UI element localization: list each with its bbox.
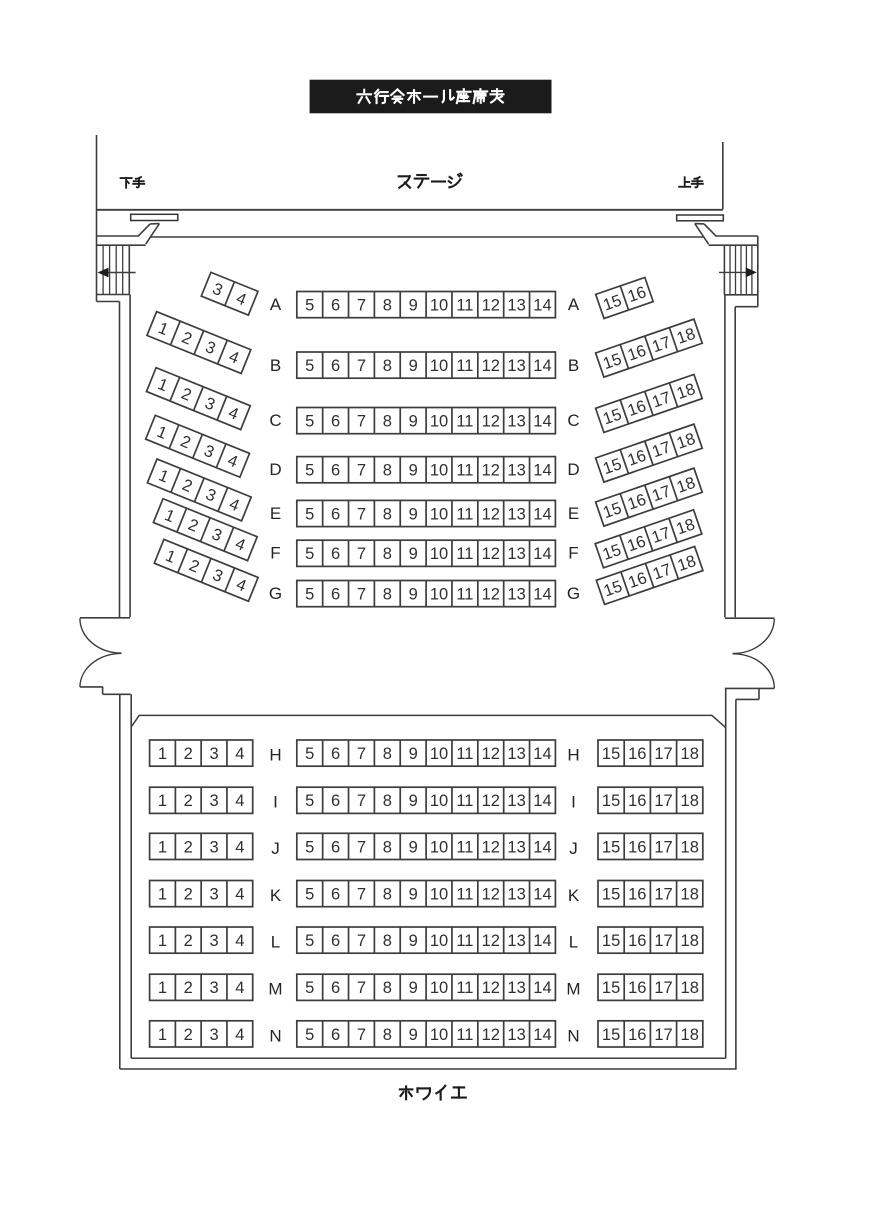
svg-text:1: 1: [158, 838, 167, 856]
svg-text:8: 8: [383, 885, 392, 903]
svg-text:8: 8: [383, 838, 392, 856]
svg-text:2: 2: [184, 932, 193, 950]
svg-text:E: E: [568, 504, 579, 523]
svg-text:D: D: [567, 460, 579, 479]
svg-text:5: 5: [305, 505, 314, 523]
svg-text:5: 5: [305, 932, 314, 950]
svg-text:7: 7: [357, 412, 366, 430]
svg-text:11: 11: [456, 505, 473, 523]
svg-text:14: 14: [533, 585, 551, 603]
svg-text:2: 2: [184, 745, 193, 763]
svg-text:17: 17: [654, 1026, 672, 1044]
svg-text:13: 13: [507, 745, 525, 763]
svg-text:6: 6: [331, 462, 340, 480]
svg-text:M: M: [566, 980, 580, 999]
svg-text:D: D: [269, 460, 281, 479]
svg-text:15: 15: [602, 838, 620, 856]
svg-text:3: 3: [209, 792, 218, 810]
svg-text:13: 13: [507, 296, 525, 314]
svg-text:16: 16: [628, 745, 646, 763]
svg-text:J: J: [569, 839, 578, 858]
svg-text:2: 2: [184, 979, 193, 997]
svg-text:1: 1: [158, 792, 167, 810]
svg-text:9: 9: [409, 545, 418, 563]
svg-text:7: 7: [357, 462, 366, 480]
svg-text:2: 2: [184, 885, 193, 903]
svg-text:9: 9: [409, 585, 418, 603]
svg-text:12: 12: [482, 412, 500, 430]
svg-text:14: 14: [533, 462, 551, 480]
svg-text:8: 8: [383, 545, 392, 563]
svg-text:4: 4: [235, 932, 244, 950]
svg-text:5: 5: [305, 792, 314, 810]
svg-text:A: A: [568, 295, 580, 314]
svg-text:6: 6: [331, 745, 340, 763]
svg-text:C: C: [269, 411, 281, 430]
svg-text:6: 6: [331, 545, 340, 563]
svg-text:5: 5: [305, 357, 314, 375]
svg-text:6: 6: [331, 932, 340, 950]
svg-text:10: 10: [430, 545, 448, 563]
svg-text:H: H: [269, 746, 281, 765]
svg-text:16: 16: [628, 979, 646, 997]
svg-text:9: 9: [409, 979, 418, 997]
svg-text:11: 11: [456, 585, 473, 603]
svg-text:5: 5: [305, 885, 314, 903]
svg-text:7: 7: [357, 745, 366, 763]
svg-text:9: 9: [409, 357, 418, 375]
svg-text:9: 9: [409, 462, 418, 480]
svg-text:M: M: [268, 980, 282, 999]
svg-text:12: 12: [482, 745, 500, 763]
svg-text:11: 11: [456, 296, 473, 314]
svg-text:3: 3: [209, 979, 218, 997]
svg-text:15: 15: [602, 792, 620, 810]
svg-text:14: 14: [533, 412, 551, 430]
svg-text:11: 11: [456, 979, 473, 997]
svg-text:L: L: [569, 933, 578, 952]
svg-text:10: 10: [430, 585, 448, 603]
svg-text:10: 10: [430, 745, 448, 763]
svg-text:16: 16: [628, 885, 646, 903]
svg-text:14: 14: [533, 792, 551, 810]
svg-text:10: 10: [430, 979, 448, 997]
svg-text:7: 7: [357, 1026, 366, 1044]
svg-text:12: 12: [482, 885, 500, 903]
svg-text:12: 12: [482, 296, 500, 314]
svg-text:F: F: [270, 544, 280, 563]
svg-text:J: J: [271, 839, 280, 858]
svg-text:17: 17: [654, 838, 672, 856]
svg-text:F: F: [568, 544, 578, 563]
svg-text:4: 4: [235, 792, 244, 810]
svg-text:3: 3: [209, 838, 218, 856]
svg-text:13: 13: [507, 792, 525, 810]
svg-text:6: 6: [331, 357, 340, 375]
svg-text:16: 16: [628, 1026, 646, 1044]
svg-text:8: 8: [383, 462, 392, 480]
svg-text:16: 16: [628, 838, 646, 856]
svg-text:11: 11: [456, 357, 473, 375]
svg-text:17: 17: [654, 792, 672, 810]
svg-text:3: 3: [209, 932, 218, 950]
svg-text:5: 5: [305, 412, 314, 430]
svg-text:8: 8: [383, 979, 392, 997]
svg-text:18: 18: [681, 885, 699, 903]
svg-text:11: 11: [456, 545, 473, 563]
svg-text:9: 9: [409, 792, 418, 810]
svg-text:14: 14: [533, 545, 551, 563]
svg-text:11: 11: [456, 885, 473, 903]
svg-text:12: 12: [482, 792, 500, 810]
svg-text:11: 11: [456, 412, 473, 430]
svg-text:G: G: [269, 584, 282, 603]
svg-text:7: 7: [357, 545, 366, 563]
svg-text:7: 7: [357, 792, 366, 810]
svg-text:14: 14: [533, 1026, 551, 1044]
svg-text:12: 12: [482, 357, 500, 375]
svg-text:6: 6: [331, 979, 340, 997]
svg-text:10: 10: [430, 885, 448, 903]
svg-text:14: 14: [533, 296, 551, 314]
svg-text:8: 8: [383, 296, 392, 314]
svg-text:12: 12: [482, 838, 500, 856]
svg-text:8: 8: [383, 932, 392, 950]
svg-text:K: K: [568, 886, 580, 905]
svg-text:13: 13: [507, 505, 525, 523]
svg-text:4: 4: [235, 979, 244, 997]
svg-text:7: 7: [357, 838, 366, 856]
svg-text:14: 14: [533, 745, 551, 763]
svg-text:1: 1: [158, 885, 167, 903]
svg-text:14: 14: [533, 979, 551, 997]
svg-text:5: 5: [305, 1026, 314, 1044]
svg-text:14: 14: [533, 932, 551, 950]
svg-text:13: 13: [507, 979, 525, 997]
svg-text:7: 7: [357, 585, 366, 603]
svg-text:9: 9: [409, 296, 418, 314]
svg-text:N: N: [269, 1026, 281, 1045]
svg-text:C: C: [567, 411, 579, 430]
svg-text:N: N: [567, 1026, 579, 1045]
svg-text:7: 7: [357, 296, 366, 314]
svg-text:10: 10: [430, 357, 448, 375]
svg-text:2: 2: [184, 1026, 193, 1044]
svg-text:13: 13: [507, 1026, 525, 1044]
svg-text:7: 7: [357, 505, 366, 523]
svg-text:1: 1: [158, 1026, 167, 1044]
svg-text:18: 18: [681, 932, 699, 950]
svg-text:8: 8: [383, 1026, 392, 1044]
svg-text:2: 2: [184, 838, 193, 856]
svg-text:16: 16: [628, 792, 646, 810]
svg-text:17: 17: [654, 745, 672, 763]
svg-text:15: 15: [602, 1026, 620, 1044]
svg-text:10: 10: [430, 932, 448, 950]
svg-text:G: G: [567, 584, 580, 603]
svg-text:6: 6: [331, 838, 340, 856]
svg-text:9: 9: [409, 505, 418, 523]
svg-text:15: 15: [602, 745, 620, 763]
svg-text:6: 6: [331, 505, 340, 523]
svg-text:13: 13: [507, 357, 525, 375]
svg-text:7: 7: [357, 932, 366, 950]
svg-text:6: 6: [331, 296, 340, 314]
svg-text:5: 5: [305, 585, 314, 603]
svg-text:9: 9: [409, 1026, 418, 1044]
svg-text:6: 6: [331, 792, 340, 810]
svg-text:12: 12: [482, 979, 500, 997]
svg-text:13: 13: [507, 838, 525, 856]
svg-text:15: 15: [602, 885, 620, 903]
svg-text:10: 10: [430, 296, 448, 314]
svg-text:13: 13: [507, 585, 525, 603]
svg-text:5: 5: [305, 838, 314, 856]
svg-text:1: 1: [158, 745, 167, 763]
svg-text:14: 14: [533, 885, 551, 903]
svg-text:K: K: [270, 886, 282, 905]
svg-text:3: 3: [209, 745, 218, 763]
svg-text:13: 13: [507, 412, 525, 430]
svg-text:11: 11: [456, 1026, 473, 1044]
svg-text:11: 11: [456, 932, 473, 950]
svg-text:1: 1: [158, 979, 167, 997]
svg-text:12: 12: [482, 545, 500, 563]
svg-text:3: 3: [209, 1026, 218, 1044]
svg-text:2: 2: [184, 792, 193, 810]
svg-text:13: 13: [507, 885, 525, 903]
svg-text:10: 10: [430, 838, 448, 856]
svg-text:3: 3: [209, 885, 218, 903]
svg-text:7: 7: [357, 357, 366, 375]
svg-text:12: 12: [482, 462, 500, 480]
svg-text:9: 9: [409, 932, 418, 950]
svg-text:17: 17: [654, 885, 672, 903]
svg-text:10: 10: [430, 412, 448, 430]
svg-text:7: 7: [357, 979, 366, 997]
svg-text:8: 8: [383, 745, 392, 763]
svg-text:12: 12: [482, 505, 500, 523]
svg-text:6: 6: [331, 1026, 340, 1044]
svg-text:9: 9: [409, 885, 418, 903]
svg-text:10: 10: [430, 792, 448, 810]
svg-text:10: 10: [430, 1026, 448, 1044]
svg-text:H: H: [567, 746, 579, 765]
svg-text:15: 15: [602, 932, 620, 950]
svg-text:13: 13: [507, 462, 525, 480]
svg-text:8: 8: [383, 505, 392, 523]
svg-text:11: 11: [456, 462, 473, 480]
svg-text:L: L: [271, 933, 280, 952]
svg-text:E: E: [270, 504, 281, 523]
svg-text:18: 18: [681, 792, 699, 810]
svg-text:14: 14: [533, 838, 551, 856]
svg-text:17: 17: [654, 932, 672, 950]
svg-text:5: 5: [305, 979, 314, 997]
svg-text:8: 8: [383, 357, 392, 375]
svg-text:5: 5: [305, 462, 314, 480]
svg-text:10: 10: [430, 462, 448, 480]
svg-text:6: 6: [331, 412, 340, 430]
svg-text:14: 14: [533, 505, 551, 523]
svg-text:1: 1: [158, 932, 167, 950]
svg-text:9: 9: [409, 838, 418, 856]
svg-text:11: 11: [456, 838, 473, 856]
svg-text:6: 6: [331, 885, 340, 903]
svg-text:6: 6: [331, 585, 340, 603]
svg-text:A: A: [270, 295, 282, 314]
svg-text:4: 4: [235, 838, 244, 856]
svg-text:16: 16: [628, 932, 646, 950]
svg-text:5: 5: [305, 745, 314, 763]
svg-text:8: 8: [383, 792, 392, 810]
svg-text:4: 4: [235, 745, 244, 763]
svg-text:B: B: [270, 356, 281, 375]
svg-text:10: 10: [430, 505, 448, 523]
svg-text:I: I: [571, 793, 576, 812]
svg-text:11: 11: [456, 745, 473, 763]
svg-text:B: B: [568, 356, 579, 375]
svg-text:14: 14: [533, 357, 551, 375]
svg-text:15: 15: [602, 979, 620, 997]
svg-text:9: 9: [409, 412, 418, 430]
svg-text:7: 7: [357, 885, 366, 903]
svg-text:17: 17: [654, 979, 672, 997]
svg-text:18: 18: [681, 979, 699, 997]
svg-text:4: 4: [235, 1026, 244, 1044]
svg-text:13: 13: [507, 932, 525, 950]
svg-text:5: 5: [305, 296, 314, 314]
svg-text:8: 8: [383, 585, 392, 603]
svg-text:18: 18: [681, 745, 699, 763]
svg-text:9: 9: [409, 745, 418, 763]
svg-text:12: 12: [482, 585, 500, 603]
svg-text:12: 12: [482, 1026, 500, 1044]
svg-text:4: 4: [235, 885, 244, 903]
svg-text:13: 13: [507, 545, 525, 563]
svg-text:5: 5: [305, 545, 314, 563]
svg-text:12: 12: [482, 932, 500, 950]
svg-text:11: 11: [456, 792, 473, 810]
svg-text:8: 8: [383, 412, 392, 430]
svg-text:18: 18: [681, 1026, 699, 1044]
svg-text:I: I: [273, 793, 278, 812]
svg-text:18: 18: [681, 838, 699, 856]
